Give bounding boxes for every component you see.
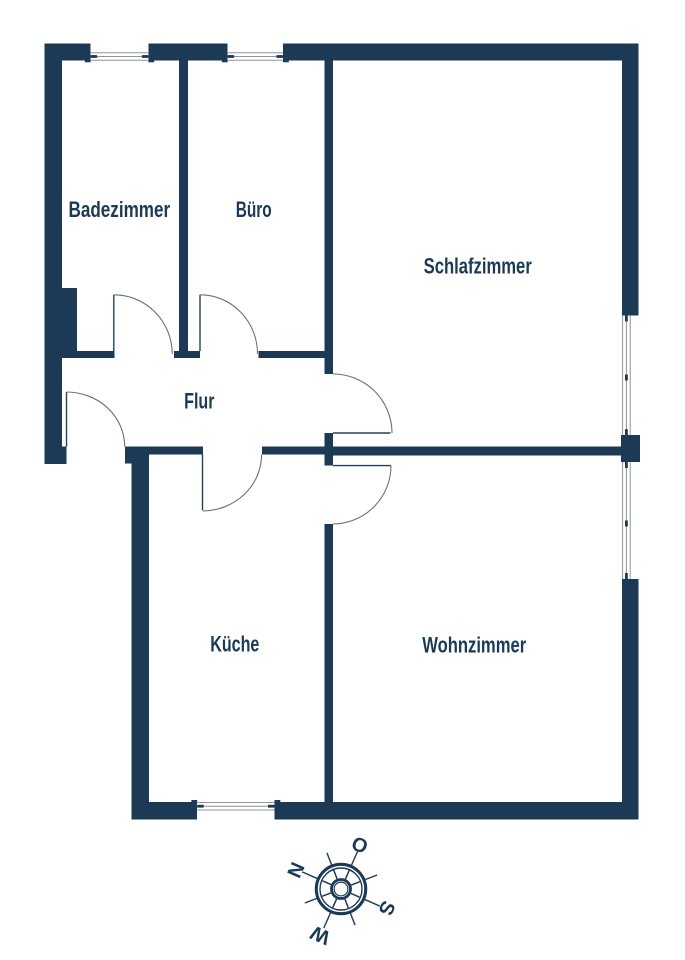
svg-text:Flur: Flur [184, 389, 214, 414]
svg-text:Büro: Büro [236, 197, 272, 222]
svg-text:Küche: Küche [210, 632, 259, 657]
svg-text:Badezimmer: Badezimmer [69, 197, 171, 222]
svg-text:Schlafzimmer: Schlafzimmer [424, 253, 532, 278]
svg-text:Wohnzimmer: Wohnzimmer [422, 633, 526, 658]
